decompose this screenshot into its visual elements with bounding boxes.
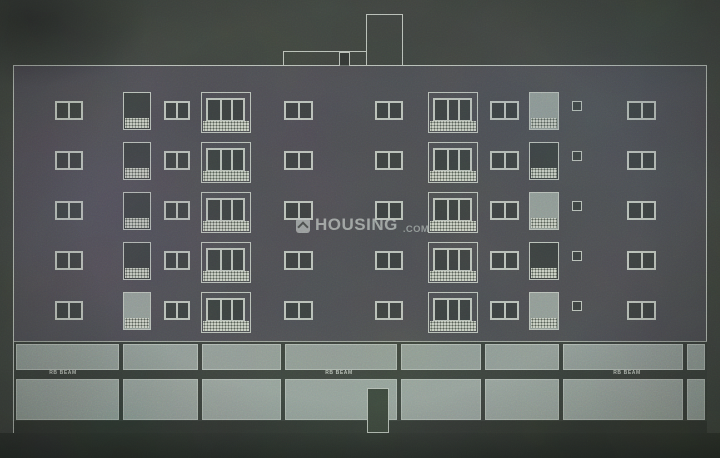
balcony-door <box>529 292 559 330</box>
balcony-rail-hatch <box>203 271 249 281</box>
shopfront-panel <box>485 344 559 370</box>
window-three-pane <box>433 148 472 172</box>
balcony-door <box>123 192 151 230</box>
window-mullion <box>458 200 460 220</box>
window-two-pane <box>55 201 83 220</box>
window-mullion <box>176 303 178 318</box>
balcony-door <box>529 242 559 280</box>
window-mullion <box>68 153 70 168</box>
balcony-rail-hatch <box>531 218 557 228</box>
window-small <box>572 301 582 311</box>
balcony-rail-hatch <box>203 221 249 231</box>
window-mullion <box>220 300 222 320</box>
window-mullion <box>447 100 449 120</box>
window-three-pane <box>206 198 245 222</box>
balcony-wide <box>428 192 478 233</box>
balcony-door <box>123 242 151 280</box>
balcony-door <box>529 142 559 180</box>
window-two-pane <box>55 101 83 120</box>
balcony-rail-hatch <box>125 218 149 228</box>
shopfront-panel <box>401 379 481 420</box>
window-mullion <box>298 303 300 318</box>
shopfront-panel <box>123 379 198 420</box>
window-mullion <box>458 250 460 270</box>
shopfront-panel <box>16 379 119 420</box>
window-two-pane <box>375 301 403 320</box>
window-small <box>572 201 582 211</box>
balcony-rail-hatch <box>203 321 249 331</box>
balcony-rail-hatch <box>125 118 149 128</box>
window-mullion <box>641 153 643 168</box>
window-mullion <box>231 200 233 220</box>
window-mullion <box>504 203 506 218</box>
window-mullion <box>220 250 222 270</box>
window-two-pane <box>627 301 656 320</box>
window-three-pane <box>206 298 245 322</box>
window-mullion <box>447 200 449 220</box>
window-two-pane <box>490 201 519 220</box>
window-mullion <box>447 300 449 320</box>
shopfront-panel <box>687 379 705 420</box>
balcony-wide <box>428 292 478 333</box>
balcony-door <box>123 142 151 180</box>
window-mullion <box>298 153 300 168</box>
window-mullion <box>68 253 70 268</box>
shopfront-panel <box>123 344 198 370</box>
window-two-pane <box>627 151 656 170</box>
window-mullion <box>458 100 460 120</box>
balcony-wide <box>201 192 251 233</box>
beam-label: RB BEAM <box>325 369 353 377</box>
entrance-door <box>367 388 389 433</box>
beam-label: RB BEAM <box>613 369 641 377</box>
window-two-pane <box>627 201 656 220</box>
window-two-pane <box>375 151 403 170</box>
window-mullion <box>176 203 178 218</box>
window-mullion <box>220 200 222 220</box>
window-three-pane <box>433 98 472 122</box>
window-mullion <box>641 103 643 118</box>
window-mullion <box>68 103 70 118</box>
shopfront-panel <box>202 344 281 370</box>
window-mullion <box>388 153 390 168</box>
window-two-pane <box>627 251 656 270</box>
window-two-pane <box>164 201 190 220</box>
balcony-rail-hatch <box>125 268 149 278</box>
window-mullion <box>504 153 506 168</box>
window-two-pane <box>375 101 403 120</box>
balcony-rail-hatch <box>430 321 476 331</box>
shopfront-panel <box>563 379 683 420</box>
window-mullion <box>458 300 460 320</box>
balcony-rail-hatch <box>125 168 149 178</box>
window-mullion <box>176 253 178 268</box>
elevation-drawing: RB BEAM RB BEAM RB BEAM HOUSING .COM <box>0 0 720 458</box>
window-two-pane <box>284 251 313 270</box>
window-mullion <box>504 303 506 318</box>
window-mullion <box>68 203 70 218</box>
window-mullion <box>447 150 449 170</box>
balcony-wide <box>428 142 478 183</box>
window-mullion <box>388 103 390 118</box>
window-two-pane <box>284 101 313 120</box>
window-three-pane <box>206 98 245 122</box>
window-mullion <box>231 300 233 320</box>
balcony-rail-hatch <box>125 318 149 328</box>
shopfront-panel <box>401 344 481 370</box>
balcony-wide <box>428 242 478 283</box>
balcony-door <box>529 192 559 230</box>
shopfront-panel <box>16 344 119 370</box>
window-mullion <box>447 250 449 270</box>
window-mullion <box>458 150 460 170</box>
balcony-rail-hatch <box>203 171 249 181</box>
window-three-pane <box>433 248 472 272</box>
window-mullion <box>220 100 222 120</box>
window-two-pane <box>55 151 83 170</box>
window-mullion <box>176 153 178 168</box>
balcony-rail-hatch <box>430 171 476 181</box>
window-three-pane <box>433 198 472 222</box>
balcony-door <box>123 92 151 130</box>
window-three-pane <box>206 148 245 172</box>
window-mullion <box>388 303 390 318</box>
window-two-pane <box>164 301 190 320</box>
window-two-pane <box>490 301 519 320</box>
window-two-pane <box>164 151 190 170</box>
window-mullion <box>641 203 643 218</box>
window-two-pane <box>55 301 83 320</box>
window-small <box>572 251 582 261</box>
window-mullion <box>298 203 300 218</box>
window-two-pane <box>375 251 403 270</box>
balcony-rail-hatch <box>531 318 557 328</box>
balcony-rail-hatch <box>203 121 249 131</box>
window-mullion <box>231 100 233 120</box>
window-mullion <box>231 250 233 270</box>
window-two-pane <box>375 201 403 220</box>
window-mullion <box>388 253 390 268</box>
window-two-pane <box>164 101 190 120</box>
balcony-rail-hatch <box>531 268 557 278</box>
balcony-rail-hatch <box>430 221 476 231</box>
shopfront-panel <box>687 344 705 370</box>
balcony-wide <box>201 142 251 183</box>
balcony-rail-hatch <box>531 118 557 128</box>
shopfront-panel <box>285 344 397 370</box>
balcony-wide <box>428 92 478 133</box>
ground-floor-band <box>14 341 707 433</box>
ground-shadow <box>0 433 720 458</box>
shopfront-panel <box>202 379 281 420</box>
balcony-rail-hatch <box>531 168 557 178</box>
window-two-pane <box>284 201 313 220</box>
window-small <box>572 151 582 161</box>
window-mullion <box>220 150 222 170</box>
window-two-pane <box>490 251 519 270</box>
balcony-wide <box>201 292 251 333</box>
window-mullion <box>388 203 390 218</box>
balcony-door <box>529 92 559 130</box>
balcony-rail-hatch <box>430 271 476 281</box>
window-mullion <box>504 253 506 268</box>
window-two-pane <box>490 151 519 170</box>
shopfront-panel <box>563 344 683 370</box>
window-mullion <box>641 303 643 318</box>
balcony-wide <box>201 242 251 283</box>
window-mullion <box>641 253 643 268</box>
window-two-pane <box>55 251 83 270</box>
window-two-pane <box>284 301 313 320</box>
window-two-pane <box>164 251 190 270</box>
window-mullion <box>231 150 233 170</box>
window-three-pane <box>206 248 245 272</box>
window-mullion <box>68 303 70 318</box>
window-mullion <box>298 103 300 118</box>
window-mullion <box>298 253 300 268</box>
balcony-door <box>123 292 151 330</box>
balcony-rail-hatch <box>430 121 476 131</box>
window-mullion <box>176 103 178 118</box>
shopfront-panel <box>485 379 559 420</box>
balcony-wide <box>201 92 251 133</box>
window-two-pane <box>284 151 313 170</box>
window-three-pane <box>433 298 472 322</box>
window-small <box>572 101 582 111</box>
window-two-pane <box>627 101 656 120</box>
window-mullion <box>504 103 506 118</box>
beam-label: RB BEAM <box>49 369 77 377</box>
window-two-pane <box>490 101 519 120</box>
